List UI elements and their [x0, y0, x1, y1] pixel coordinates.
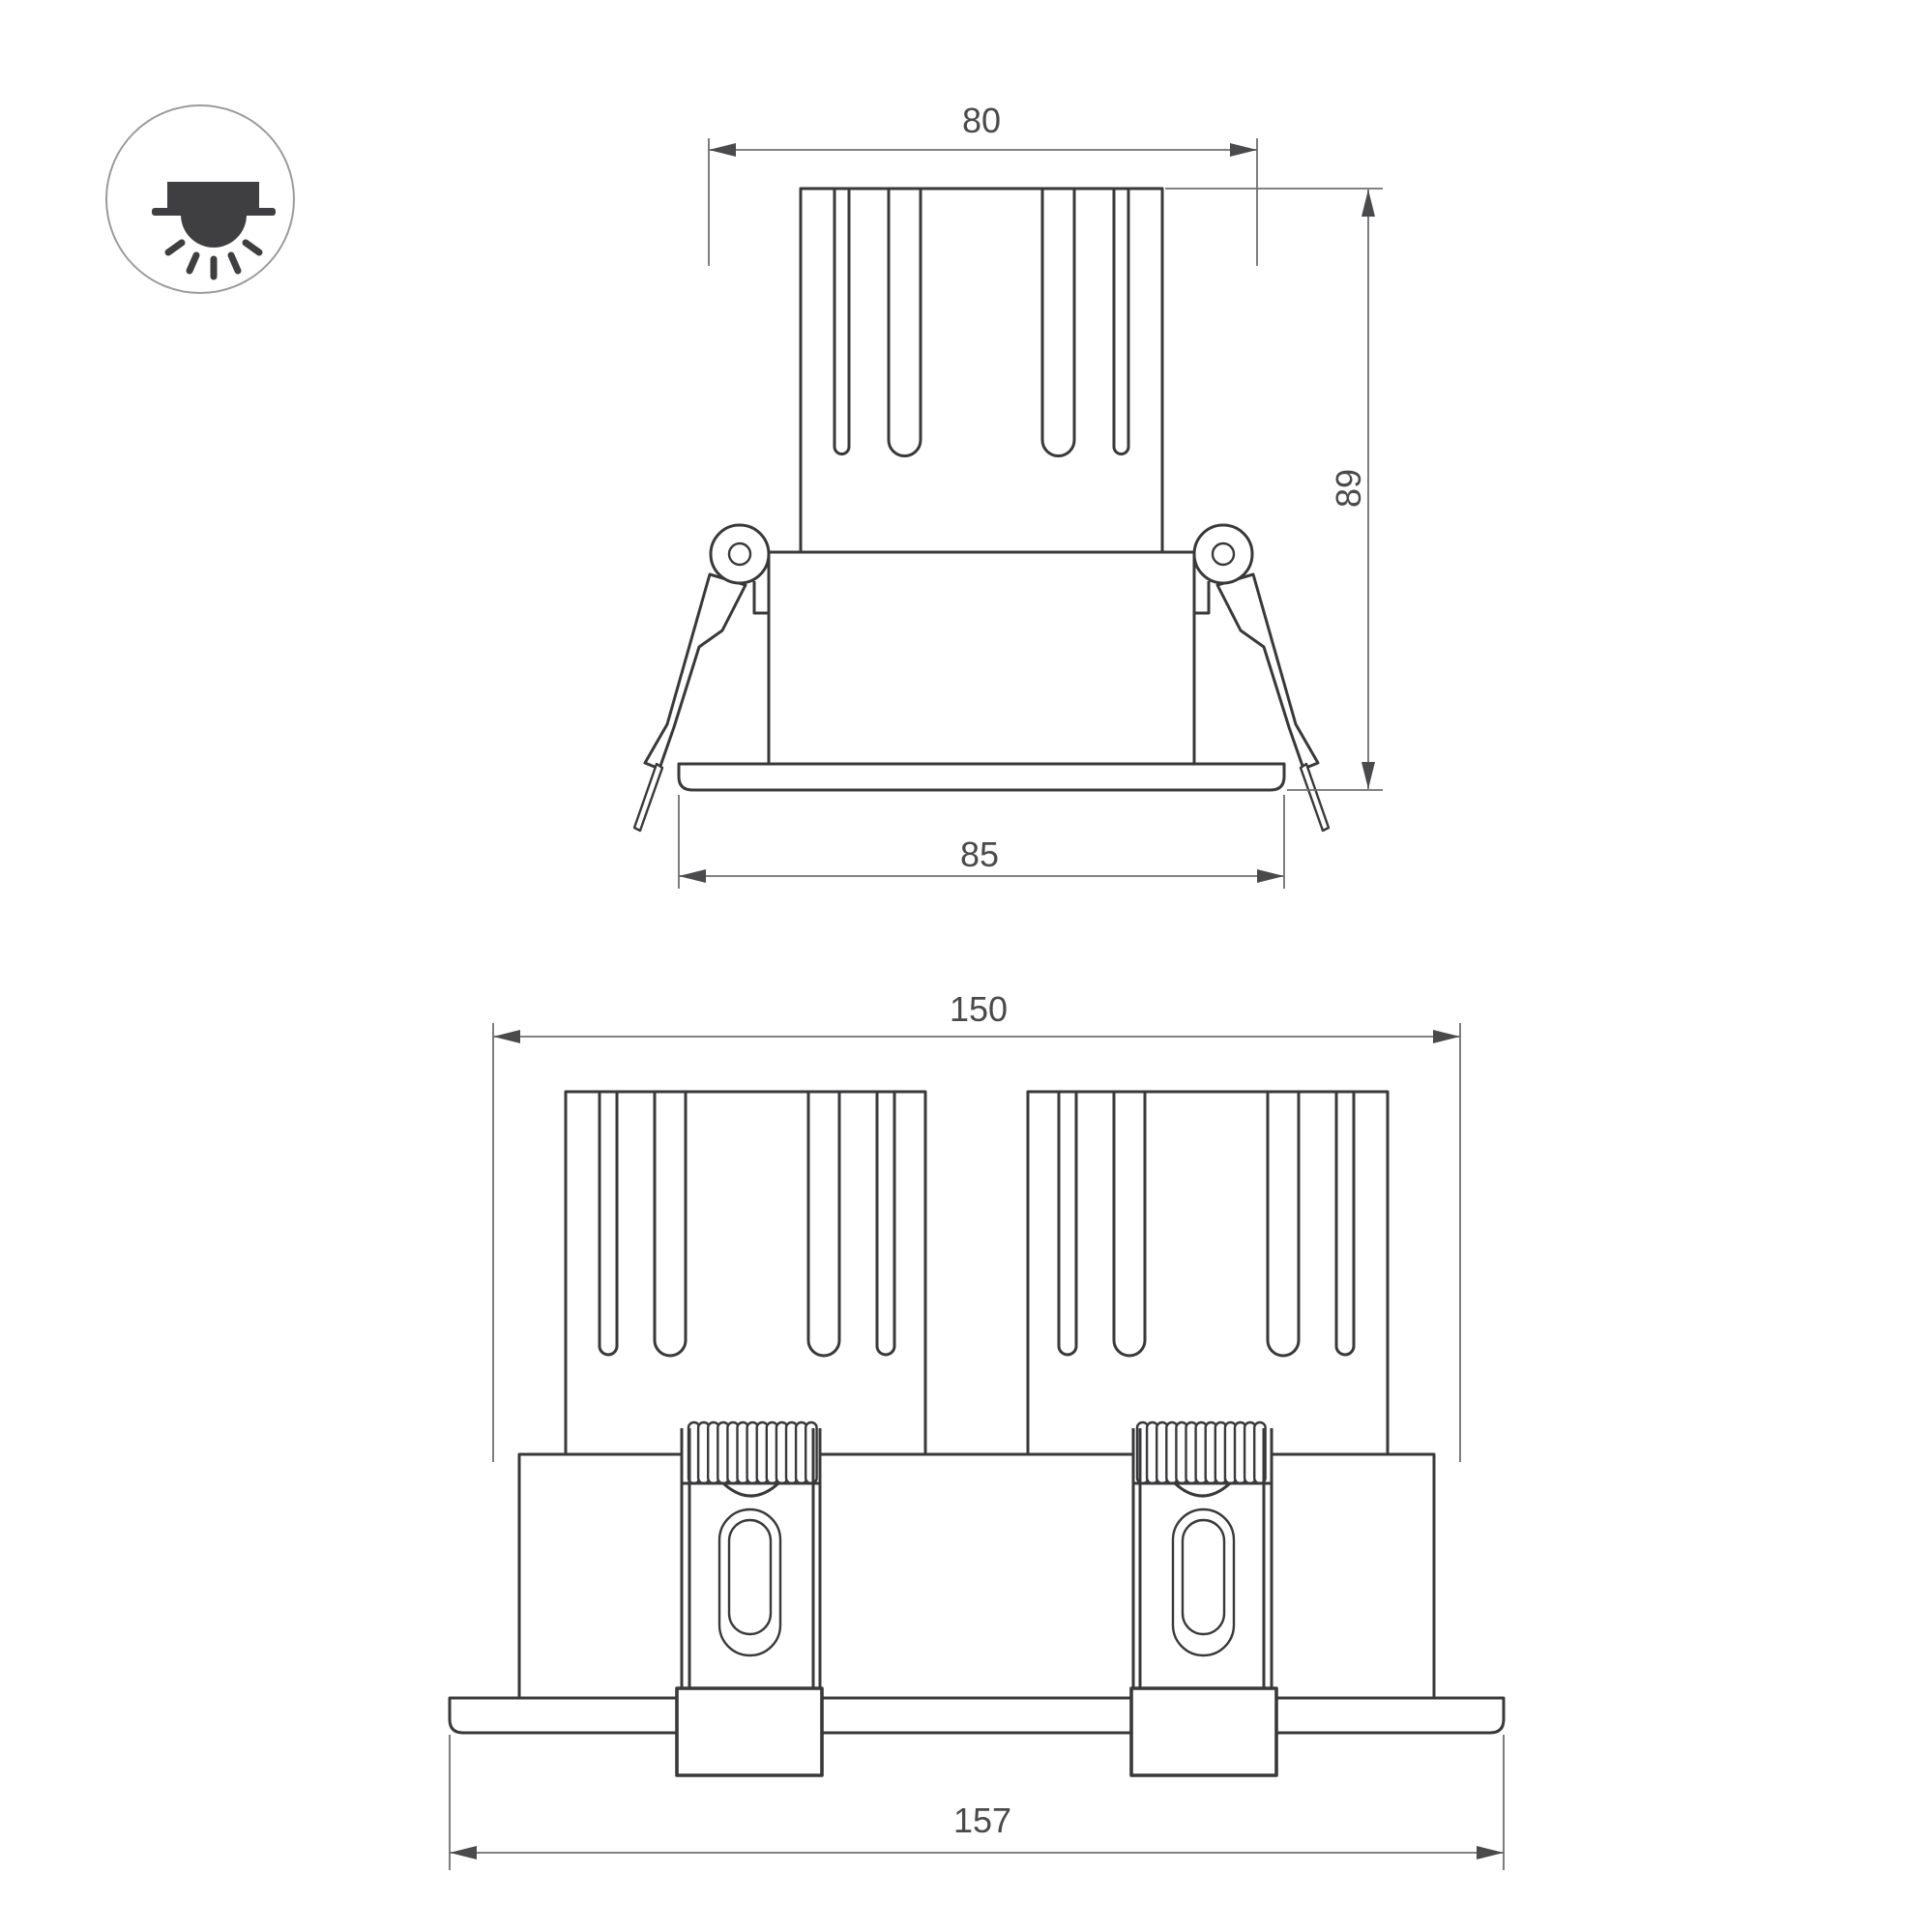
- arrowhead-icon: [709, 143, 736, 157]
- icon-lamp-body: [167, 182, 259, 211]
- arrowhead-icon: [450, 1846, 477, 1859]
- clip-pivot-hole: [729, 543, 750, 565]
- arrowhead-icon: [1257, 869, 1284, 883]
- fin-slot: [600, 1093, 617, 1355]
- fixing-clamp-right: [1131, 1421, 1276, 1775]
- dimension-label: 89: [1329, 469, 1368, 508]
- icon-ceiling-flange: [152, 208, 276, 216]
- fin-slot: [1059, 1093, 1076, 1355]
- fin-slot: [1114, 1093, 1145, 1356]
- fin-slot: [1114, 190, 1128, 454]
- fin-slot: [877, 1093, 894, 1355]
- heatsink: [801, 189, 1162, 552]
- clamp-foot: [1131, 1688, 1276, 1775]
- dimension-157: 157: [450, 1735, 1504, 1870]
- double-luminaire-front-view: 150 157: [450, 989, 1504, 1870]
- fin-slot: [655, 1093, 686, 1356]
- fin-slot: [1268, 1093, 1299, 1356]
- heatsink-left: [566, 1092, 925, 1454]
- housing-body: [769, 552, 1194, 764]
- fixing-clamp-left: [677, 1421, 822, 1775]
- spring-coil: [1137, 1422, 1266, 1483]
- arrowhead-icon: [679, 869, 706, 883]
- clip-bracket-tab: [754, 581, 769, 613]
- dimension-85: 85: [679, 795, 1284, 889]
- arrowhead-icon: [1361, 190, 1375, 217]
- arrowhead-icon: [1230, 143, 1257, 157]
- heatsink-right: [1028, 1092, 1388, 1454]
- dimension-drawing-canvas: 80 89 85: [0, 0, 1932, 1932]
- dimension-label: 157: [953, 1800, 1011, 1840]
- screw-slot-inner: [1183, 1520, 1224, 1634]
- arrowhead-icon: [1433, 1030, 1460, 1043]
- single-luminaire-front-view: 80 89 85: [634, 101, 1383, 889]
- screw-slot-inner: [729, 1520, 771, 1634]
- fin-slot: [889, 190, 921, 456]
- dimension-label: 80: [962, 101, 1001, 140]
- arrowhead-icon: [1361, 762, 1375, 789]
- clip-bracket-tab: [1194, 581, 1209, 613]
- clamp-foot: [677, 1688, 822, 1775]
- dimension-label: 85: [960, 834, 999, 874]
- clip-blade: [1217, 574, 1318, 769]
- arrowhead-icon: [493, 1030, 520, 1043]
- fin-slot: [1042, 190, 1074, 456]
- dimension-80: 80: [709, 101, 1257, 266]
- trim-flange: [679, 764, 1284, 790]
- fin-slot: [1336, 1093, 1354, 1355]
- clip-needle-tip: [634, 764, 662, 831]
- arrowhead-icon: [1477, 1846, 1504, 1859]
- clip-blade: [645, 574, 746, 769]
- dimension-89: 89: [1165, 189, 1383, 790]
- dimension-150: 150: [493, 989, 1460, 1462]
- spring-coil: [688, 1422, 817, 1483]
- recessed-downlight-icon: [106, 105, 294, 293]
- dimension-label: 150: [950, 989, 1008, 1029]
- clip-needle-tip: [1301, 764, 1329, 831]
- drawing-page: 80 89 85: [0, 0, 1932, 1932]
- clip-pivot-hole: [1213, 543, 1234, 565]
- housing-body: [519, 1454, 1434, 1698]
- trim-flange: [450, 1698, 1504, 1733]
- fin-slot: [834, 190, 849, 454]
- fin-slot: [808, 1093, 839, 1356]
